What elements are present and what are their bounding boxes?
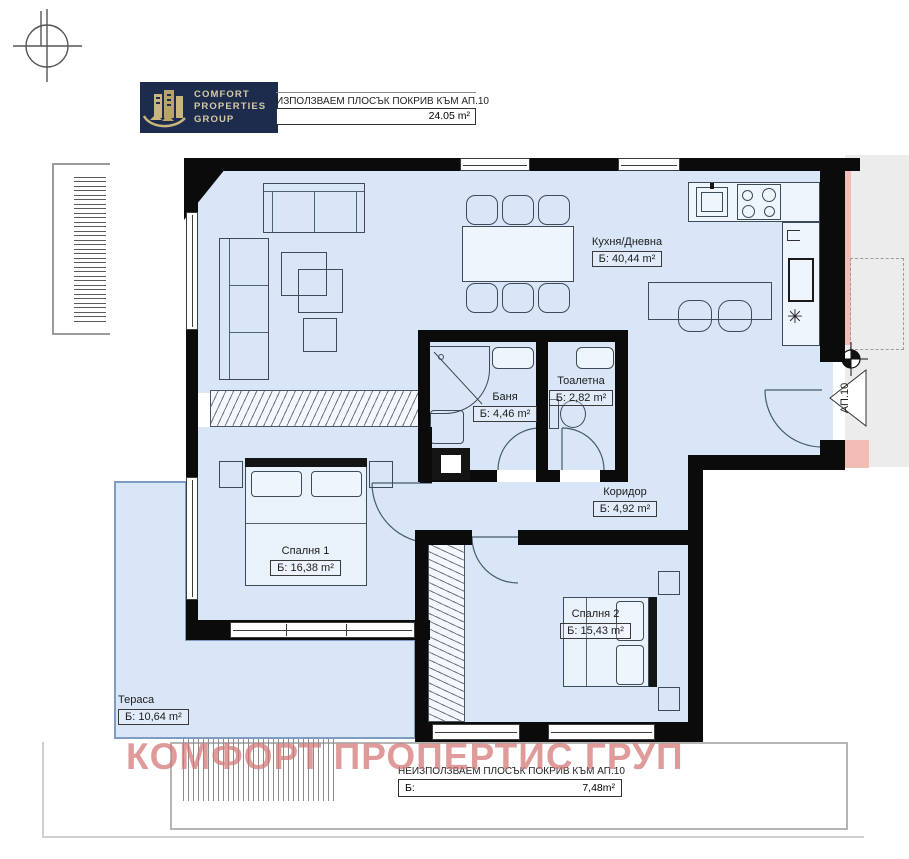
room-label-terrace: Тераса Б: 10,64 m²	[118, 694, 213, 725]
dining-chair	[502, 195, 534, 225]
kitchen-sink-basin	[701, 192, 723, 212]
dining-chair	[538, 195, 570, 225]
logo-line: COMFORT	[194, 89, 266, 102]
logo-icon	[140, 86, 188, 130]
exterior-louver	[52, 163, 110, 335]
pillow	[616, 645, 644, 685]
oven-niche	[788, 258, 814, 302]
logo: COMFORT PROPERTIES GROUP	[140, 82, 278, 133]
window	[186, 212, 198, 330]
room-name: Тераса	[118, 694, 213, 707]
wardrobe	[428, 542, 465, 722]
room-label-bedroom2: Спалня 2 Б: 15,43 m²	[548, 608, 643, 639]
logo-line: GROUP	[194, 114, 266, 127]
wall	[418, 330, 628, 342]
room-area-box: Б: 16,38 m²	[270, 560, 341, 577]
room-name: Спалня 1	[258, 545, 353, 558]
logo-line: PROPERTIES	[194, 101, 266, 114]
roof-area-value: 7,48m²	[582, 780, 615, 796]
room-area-box: Б: 40,44 m²	[592, 251, 663, 268]
room-label-toilet: Тоалетна Б: 2,82 m²	[540, 375, 622, 406]
room-name: Баня	[460, 391, 550, 404]
room-name: Коридор	[582, 486, 668, 499]
burner	[762, 188, 776, 202]
washbasin	[492, 347, 534, 369]
logo-text: COMFORT PROPERTIES GROUP	[194, 89, 266, 127]
pillow	[251, 471, 302, 497]
wall	[518, 530, 688, 545]
wall	[540, 470, 560, 482]
pillow	[311, 471, 362, 497]
watermark: КОМФОРТ ПРОПЕРТИС ГРУП	[126, 736, 684, 778]
compass-icon	[13, 9, 82, 82]
wall	[600, 470, 628, 482]
coffee-table	[298, 269, 343, 313]
room-area-box: Б: 10,64 m²	[118, 709, 189, 726]
roof-label-text: ИЗПОЛЗВАЕМ ПЛОСЪК ПОКРИВ КЪМ АП.10	[276, 93, 476, 107]
shaft-opening	[441, 455, 461, 473]
floor-plan: ✳ Кухня/Дневна Б: 40,44 m² Баня Б: 4,46 …	[0, 0, 909, 859]
window	[618, 158, 680, 171]
dining-chair	[466, 195, 498, 225]
washing-machine	[430, 410, 464, 444]
roof-area-prefix: Б:	[405, 780, 415, 796]
window	[230, 622, 415, 638]
bar-stool	[718, 300, 752, 332]
room-label-bath: Баня Б: 4,46 m²	[460, 391, 550, 422]
nightstand	[658, 687, 680, 711]
bed-headboard	[649, 597, 657, 687]
side-table	[303, 318, 337, 352]
faucet	[710, 183, 714, 189]
burner	[742, 190, 753, 201]
window	[460, 158, 530, 171]
roof-area-box: 24.05 m²	[276, 108, 476, 125]
room-area-box: Б: 4,92 m²	[593, 501, 658, 518]
room-name: Спалня 2	[548, 608, 643, 621]
room-area-box: Б: 2,82 m²	[549, 390, 614, 407]
room-name: Тоалетна	[540, 375, 622, 388]
washbasin	[576, 347, 614, 369]
room-area-box: Б: 15,43 m²	[560, 623, 631, 640]
room-label-bedroom1: Спалня 1 Б: 16,38 m²	[258, 545, 353, 576]
wall	[820, 348, 845, 362]
room-name: Кухня/Дневна	[572, 236, 682, 249]
counter-symbol	[787, 230, 800, 241]
room-label-corridor: Коридор Б: 4,92 m²	[582, 486, 668, 517]
dining-table	[462, 226, 574, 282]
wall	[688, 455, 703, 742]
sofa	[263, 183, 365, 233]
site-boundary-line	[42, 836, 864, 838]
burner	[764, 206, 775, 217]
bed-headboard	[245, 458, 367, 467]
nightstand	[219, 461, 243, 488]
adjacent-wall-marker	[845, 440, 869, 468]
burner	[742, 205, 755, 218]
wall	[700, 455, 845, 470]
dining-chair	[538, 283, 570, 313]
louver-slats	[74, 177, 106, 325]
wall	[820, 158, 845, 348]
usable-roof-label: ИЗПОЛЗВАЕМ ПЛОСЪК ПОКРИВ КЪМ АП.10 24.05…	[276, 92, 476, 125]
room-area-box: Б: 4,46 m²	[473, 406, 538, 423]
wardrobe	[210, 390, 430, 427]
bar-stool	[678, 300, 712, 332]
window	[186, 477, 198, 600]
roof-area-box: Б: 7,48m²	[398, 779, 622, 797]
site-boundary-line	[42, 742, 44, 838]
vent-symbol: ✳	[780, 306, 810, 330]
apartment-tag: АП.10	[839, 368, 853, 428]
shaft-dashed-outline	[850, 258, 904, 350]
dining-chair	[502, 283, 534, 313]
nightstand	[658, 571, 680, 595]
sectional-sofa	[219, 238, 269, 380]
dining-chair	[466, 283, 498, 313]
nightstand	[369, 461, 393, 488]
wall	[420, 427, 432, 483]
room-entry	[628, 338, 833, 455]
room-label-kitchen: Кухня/Дневна Б: 40,44 m²	[572, 236, 682, 267]
